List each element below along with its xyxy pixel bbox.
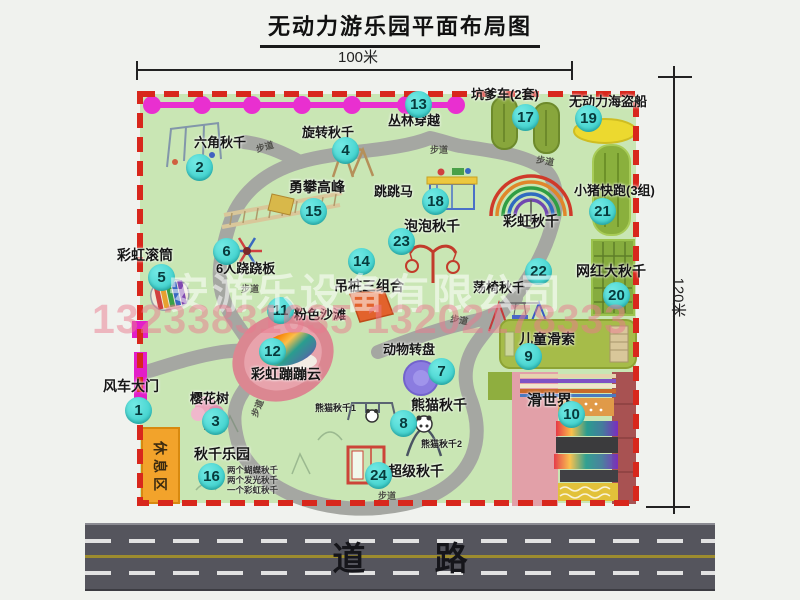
label-1: 风车大门	[103, 379, 159, 394]
path-label: 步道	[430, 146, 448, 155]
badge-21: 21	[589, 198, 616, 225]
label-17: 坑爹车(2套)	[471, 88, 539, 102]
label-5: 彩虹滚筒	[117, 248, 173, 263]
badge-8: 8	[390, 410, 417, 437]
label-7: 动物转盘	[383, 343, 435, 357]
badge-2: 2	[186, 154, 213, 181]
badge-3: 3	[202, 408, 229, 435]
badge-23: 23	[388, 228, 415, 255]
hexagon-swing-seat	[172, 159, 178, 165]
label-8: 熊猫秋千	[411, 398, 467, 413]
label-2: 六角秋千	[194, 136, 246, 150]
badge-18: 18	[422, 188, 449, 215]
label-15: 勇攀高峰	[289, 180, 345, 195]
badge-13: 13	[405, 91, 432, 118]
badge-9: 9	[515, 343, 542, 370]
seesaw-spinner-hub	[243, 247, 251, 255]
small-label: 熊猫秋千2	[421, 440, 462, 449]
road: 道 路	[85, 523, 715, 591]
badge-1: 1	[125, 397, 152, 424]
swing-park-notes: 两个蝴蝶秋千两个发光秋千一个彩虹秋千	[227, 465, 278, 495]
label-20: 网红大秋千	[576, 264, 646, 279]
label-18: 跳跳马	[374, 185, 413, 199]
park-map-image: 无动力游乐园平面布局图 100米 120米 休息区 1风车大门2六角秋千3樱花树…	[0, 0, 800, 600]
badge-19: 19	[575, 105, 602, 132]
label-16: 秋千乐园	[194, 447, 250, 462]
dimension-width-label: 100米	[338, 46, 378, 67]
label-extra: 彩虹秋千	[503, 214, 559, 229]
badge-4: 4	[332, 137, 359, 164]
dimension-height-label: 120米	[669, 275, 690, 321]
badge-10: 10	[558, 401, 585, 428]
swing-park-note-line: 两个蝴蝶秋千	[227, 465, 278, 475]
label-24: 超级秋千	[388, 464, 444, 479]
label-12: 彩虹蹦蹦云	[251, 367, 321, 382]
watermark-phone: 13233831635 13202178333	[92, 296, 628, 343]
hexagon-swing-seat	[209, 152, 215, 158]
badge-17: 17	[512, 104, 539, 131]
swing-park-note-line: 一个彩虹秋千	[227, 485, 278, 495]
road-label: 道 路	[302, 532, 497, 580]
label-23: 泡泡秋千	[404, 219, 460, 234]
page-title: 无动力游乐园平面布局图	[260, 9, 540, 48]
rest-area-label: 休息区	[150, 433, 170, 503]
swing-park-note-line: 两个发光秋千	[227, 475, 278, 485]
badge-24: 24	[365, 462, 392, 489]
badge-16: 16	[198, 463, 225, 490]
label-21: 小猪快跑(3组)	[574, 184, 655, 198]
badge-15: 15	[300, 198, 327, 225]
badge-7: 7	[428, 358, 455, 385]
small-label: 熊猫秋千1	[315, 404, 356, 413]
path-label: 步道	[378, 492, 396, 501]
label-3: 樱花树	[190, 392, 229, 406]
